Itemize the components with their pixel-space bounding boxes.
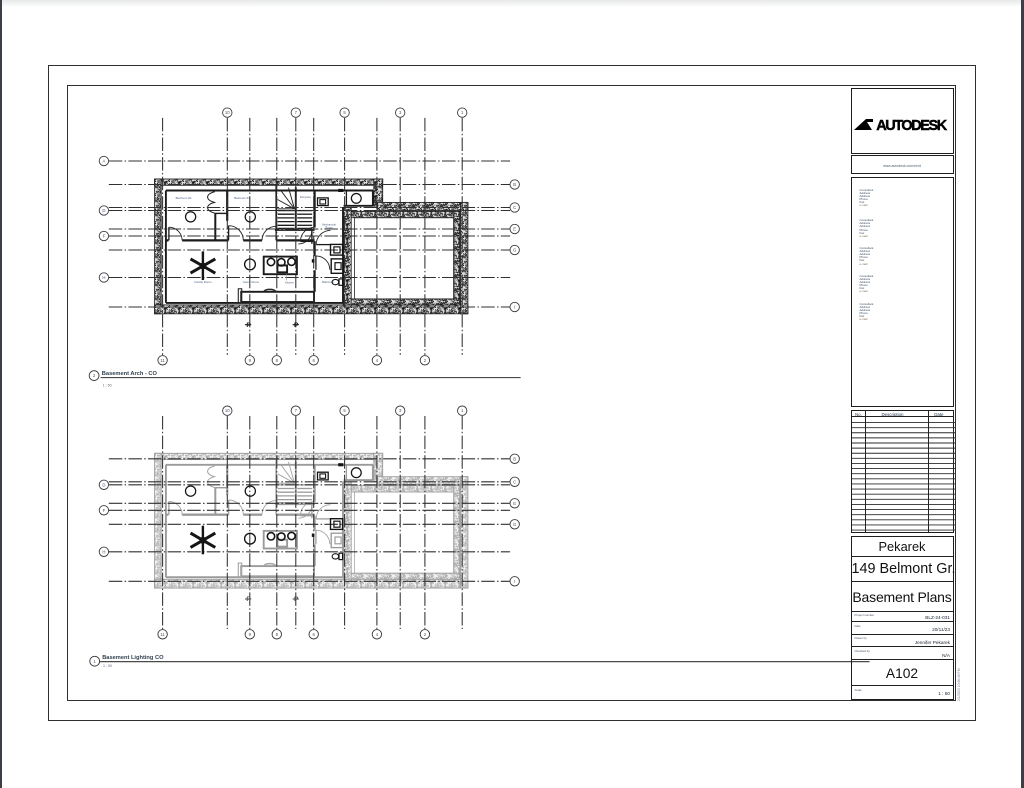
- svg-text:11: 11: [160, 632, 165, 637]
- svg-text:Kitchen: Kitchen: [285, 280, 294, 284]
- svg-text:Bedroom #1: Bedroom #1: [234, 196, 250, 200]
- svg-text:Basement Arch - CO: Basement Arch - CO: [102, 371, 158, 377]
- svg-text:A: A: [102, 159, 105, 164]
- svg-text:Family Room: Family Room: [194, 280, 212, 284]
- svg-text:I: I: [514, 579, 515, 584]
- svg-text:H: H: [102, 549, 105, 554]
- svg-text:F: F: [103, 234, 106, 239]
- svg-text:H: H: [102, 275, 105, 280]
- svg-text:P: P: [294, 596, 299, 603]
- svg-text:C: C: [513, 205, 516, 210]
- svg-text:AUTODESK: AUTODESK: [876, 118, 947, 134]
- svg-text:Bathroom: Bathroom: [322, 280, 334, 284]
- svg-text:Basement Lighting CO: Basement Lighting CO: [102, 655, 164, 661]
- svg-text:1 : 50: 1 : 50: [103, 384, 112, 388]
- svg-text:F: F: [103, 508, 106, 513]
- svg-text:B: B: [513, 456, 516, 461]
- svg-text:10: 10: [225, 408, 230, 413]
- svg-text:Room: Room: [325, 225, 333, 229]
- svg-text:P: P: [246, 322, 251, 329]
- svg-text:E: E: [513, 227, 516, 232]
- svg-text:C: C: [513, 479, 516, 484]
- svg-text:Bedroom #2: Bedroom #2: [176, 196, 192, 200]
- svg-text:Entryway: Entryway: [300, 195, 312, 199]
- svg-text:10: 10: [225, 110, 230, 115]
- svg-text:P: P: [246, 596, 251, 603]
- svg-text:B: B: [513, 182, 516, 187]
- svg-text:P: P: [294, 322, 299, 329]
- svg-text:Game Room: Game Room: [243, 280, 260, 284]
- svg-text:1 : 50: 1 : 50: [103, 664, 112, 668]
- svg-text:D: D: [102, 482, 105, 487]
- svg-text:I: I: [514, 305, 515, 310]
- svg-text:11: 11: [160, 358, 165, 363]
- svg-text:E: E: [513, 501, 516, 506]
- svg-text:D: D: [102, 208, 105, 213]
